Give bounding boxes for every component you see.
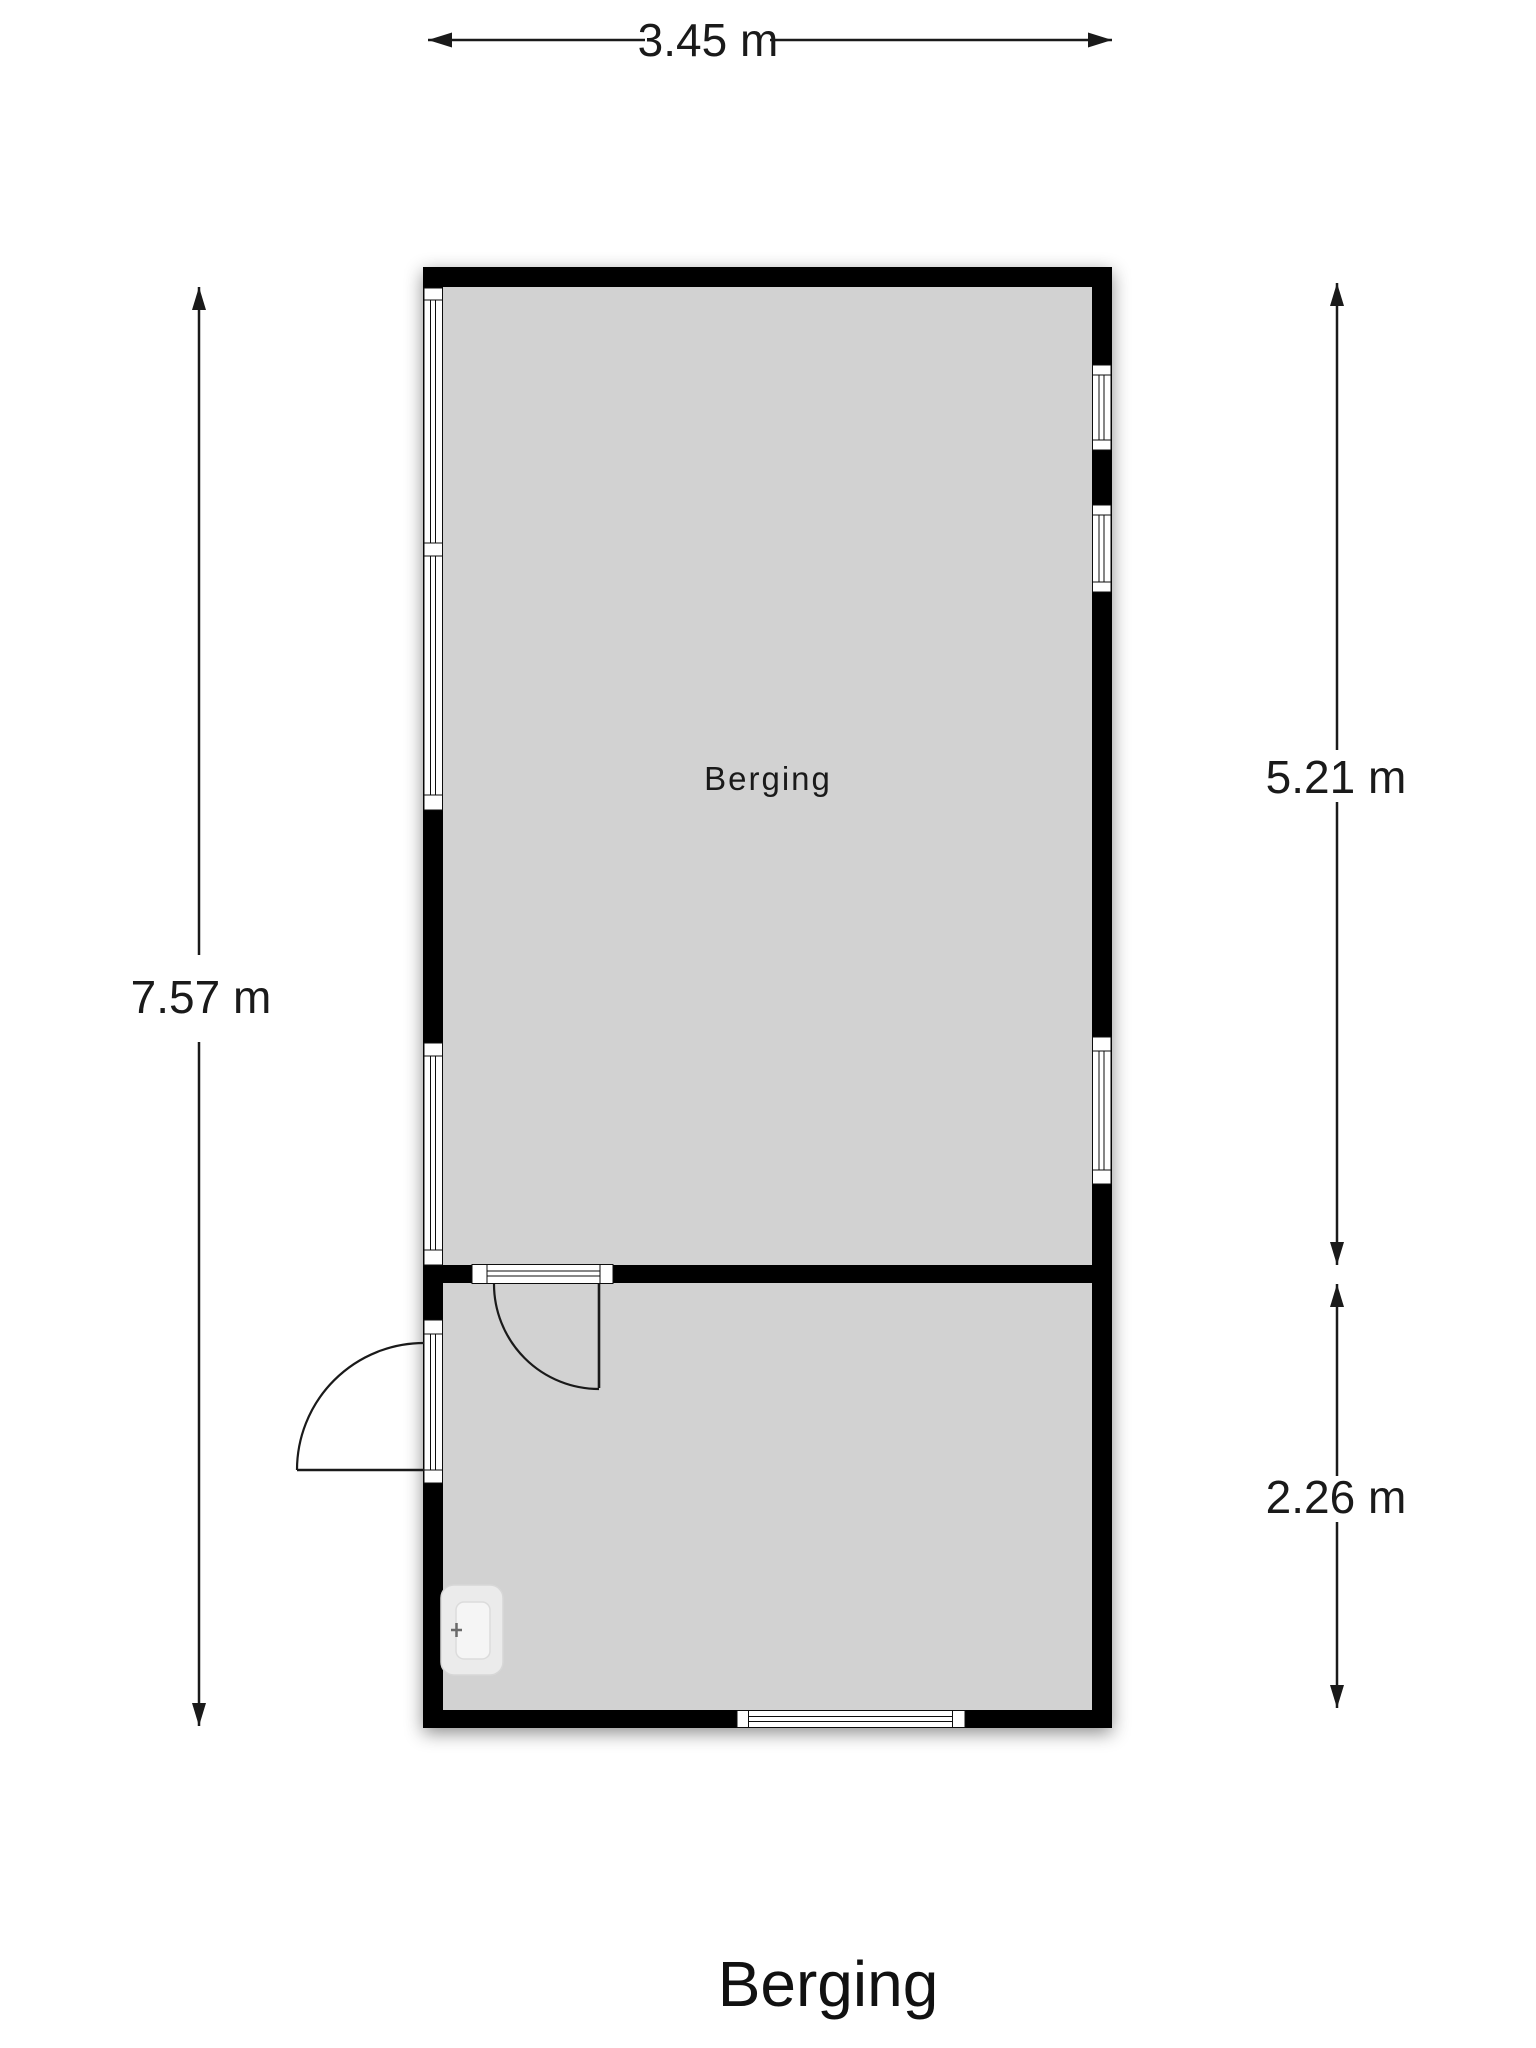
dimension-top-label: 3.45 m [638, 14, 779, 66]
right-window-1 [1093, 375, 1112, 440]
left-wall-windows [424, 288, 443, 1265]
window-sill [424, 1250, 443, 1265]
door-swing-arc [297, 1343, 424, 1470]
exterior-door [297, 1343, 424, 1470]
window-sill [1093, 1170, 1112, 1184]
right-wall [1092, 287, 1112, 1710]
interior-door-threshold [487, 1265, 600, 1284]
building [423, 267, 1112, 1728]
floorplan-svg: 3.45 m 7.57 m 5.21 m 2.26 m Berging Berg… [0, 0, 1536, 2048]
exterior-door-threshold [424, 1334, 443, 1470]
window-sill [424, 795, 443, 810]
window-sill [424, 543, 443, 556]
window-post [737, 1711, 749, 1728]
right-window-3 [1093, 1051, 1112, 1170]
arrow-up-icon [1330, 283, 1344, 306]
interior-door-opening [472, 1265, 613, 1284]
door-post [424, 1320, 443, 1334]
bottom-window-glazing [749, 1711, 953, 1728]
left-window-3 [424, 1056, 443, 1250]
window-sill [1093, 582, 1112, 592]
dimension-right-upper: 5.21 m [1266, 283, 1407, 1265]
arrow-left-icon [428, 33, 452, 48]
window-post [953, 1711, 966, 1728]
left-window-2 [424, 556, 443, 795]
window-sill [424, 288, 443, 300]
window-sill [1093, 365, 1112, 375]
floor-area [443, 287, 1092, 1710]
right-window-2 [1093, 515, 1112, 582]
dimension-left: 7.57 m [131, 287, 272, 1726]
arrow-down-icon [192, 1703, 206, 1726]
dimension-right-lower: 2.26 m [1266, 1284, 1407, 1708]
arrow-right-icon [1088, 33, 1112, 48]
door-post [424, 1470, 443, 1483]
window-sill [424, 1043, 443, 1056]
arrow-up-icon [192, 287, 206, 310]
floorplan-page: 3.45 m 7.57 m 5.21 m 2.26 m Berging Berg… [0, 0, 1536, 2048]
window-sill [1093, 440, 1112, 450]
arrow-down-icon [1330, 1685, 1344, 1708]
window-sill [1093, 505, 1112, 515]
dimension-right-lower-label: 2.26 m [1266, 1471, 1407, 1523]
arrow-down-icon [1330, 1242, 1344, 1265]
room-label: Berging [704, 760, 832, 797]
washbasin-icon [441, 1585, 503, 1675]
left-window-1 [424, 300, 443, 543]
bottom-window [737, 1711, 965, 1728]
dimension-top: 3.45 m [428, 14, 1112, 66]
dimension-right-upper-label: 5.21 m [1266, 751, 1407, 803]
exterior-door-opening [424, 1320, 443, 1483]
door-post [472, 1265, 487, 1284]
arrow-up-icon [1330, 1284, 1344, 1307]
plan-title: Berging [718, 1948, 939, 2020]
door-post [600, 1265, 613, 1284]
window-sill [1093, 1037, 1112, 1051]
dimension-left-label: 7.57 m [131, 971, 272, 1023]
top-wall [423, 267, 1112, 287]
